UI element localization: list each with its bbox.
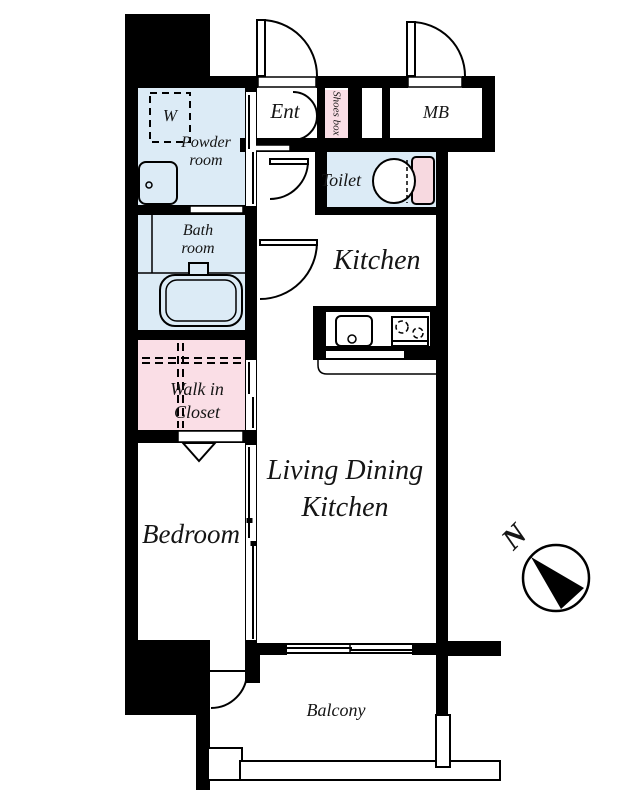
balcony-partition — [436, 715, 450, 767]
balcony-wall — [240, 761, 500, 780]
closet-folding-door — [183, 443, 215, 461]
wall-segment — [125, 14, 138, 715]
kitchen-sink — [336, 316, 372, 346]
wall-segment — [317, 88, 325, 140]
hall-door-leaf — [260, 240, 317, 245]
wall-segment — [410, 643, 436, 655]
compass-icon — [523, 545, 589, 611]
bathtub-faucet — [189, 263, 208, 275]
partition-handle — [247, 518, 253, 523]
entrance-threshold — [258, 77, 316, 87]
wall-segment — [138, 330, 245, 340]
powder-sliding-door — [246, 92, 256, 206]
mb-door-arc — [411, 22, 465, 76]
sliding-doors — [246, 92, 257, 640]
bathtub — [160, 275, 242, 326]
shoes-box-door-arc — [293, 116, 317, 140]
partition-handle — [251, 541, 257, 546]
wall-segment — [316, 76, 408, 88]
balcony-window — [287, 642, 412, 656]
wall-segment — [436, 641, 501, 656]
balcony-door-gap — [210, 643, 245, 655]
hall-door-arc — [260, 242, 317, 299]
hall-threshold — [252, 145, 290, 151]
closet-threshold — [178, 431, 243, 442]
balcony-wall — [208, 748, 242, 780]
entrance-door-arc — [261, 20, 317, 76]
floor-plan: Powder room W Bath room Walk in Closet B… — [0, 0, 622, 800]
wall-segment — [315, 152, 327, 215]
bath-threshold — [190, 206, 243, 213]
toilet-door-arc — [270, 161, 308, 199]
powder-sink — [139, 162, 177, 204]
wall-segment — [315, 207, 436, 215]
shoes-box-area — [325, 90, 348, 138]
mb-door-leaf — [407, 22, 415, 76]
shoes-box-door-arc — [293, 92, 317, 116]
wall-segment — [348, 88, 362, 140]
entrance-door-leaf — [257, 20, 265, 76]
closet-sliding-door — [246, 360, 256, 430]
wall-segment — [382, 88, 390, 140]
walk-in-closet-area — [138, 340, 245, 430]
balcony-walls — [208, 715, 500, 780]
kitchen-cabinet-front — [326, 351, 404, 358]
floor-plan-drawing — [0, 0, 622, 800]
mb-threshold — [408, 77, 462, 87]
toilet-bowl — [373, 159, 415, 203]
toilet-door-leaf — [270, 159, 308, 164]
wall-segment — [436, 152, 448, 715]
balcony-door-arc — [211, 672, 247, 708]
